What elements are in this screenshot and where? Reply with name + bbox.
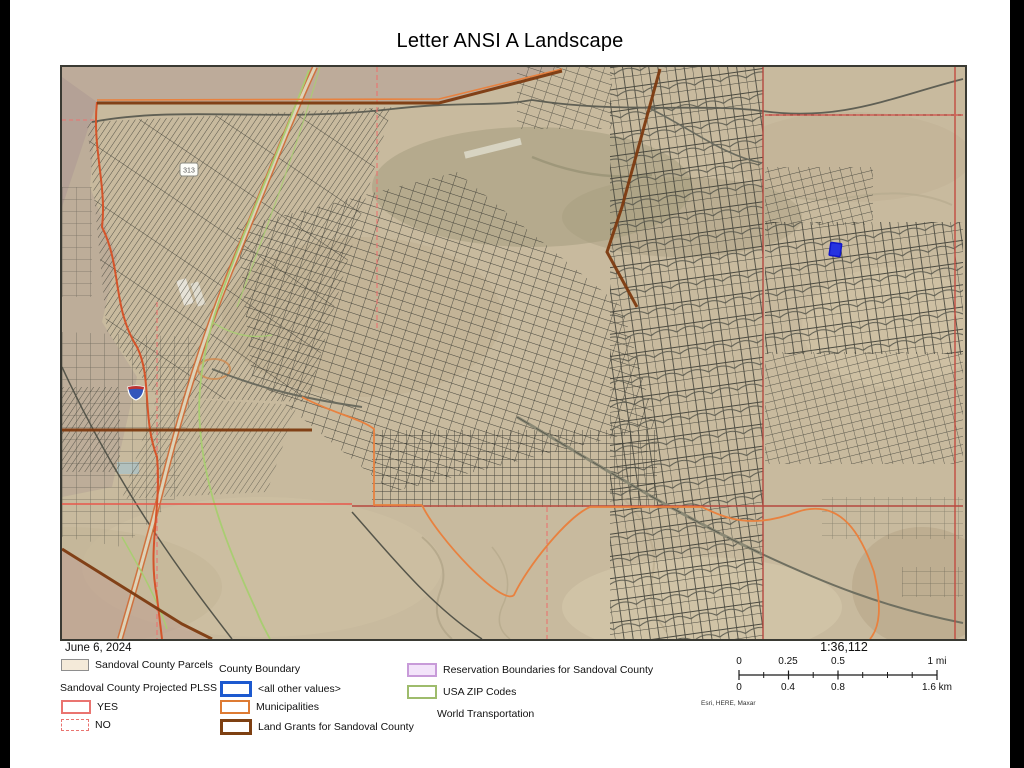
print-layout-page: Letter ANSI A Landscape	[10, 0, 1010, 768]
route-shield-313: 313	[180, 163, 198, 176]
scale-tick-label: 0	[736, 656, 742, 667]
page-title: Letter ANSI A Landscape	[10, 30, 1010, 53]
legend-label: YES	[97, 701, 118, 713]
legend-label: Sandoval County Parcels	[95, 659, 213, 671]
legend-label: NO	[95, 719, 111, 731]
plss-yes-swatch	[61, 700, 91, 714]
map-date: June 6, 2024	[65, 642, 132, 654]
scalebar	[738, 669, 940, 681]
scalebar-miles-labels: 0 0.25 0.5 1 mi	[739, 656, 937, 668]
scale-tick-label: 0.5	[831, 656, 845, 667]
legend-label: <all other values>	[258, 683, 341, 695]
legend-label: Land Grants for Sandoval County	[258, 721, 414, 733]
land-grants-swatch	[220, 719, 252, 735]
plss-no-swatch	[61, 719, 89, 731]
legend-label: Reservation Boundaries for Sandoval Coun…	[443, 664, 653, 676]
parcels-swatch	[61, 659, 89, 671]
legend-item-usa-zip-codes: USA ZIP Codes	[407, 685, 516, 699]
zip-codes-swatch	[407, 685, 437, 699]
legend-label: USA ZIP Codes	[443, 686, 516, 698]
legend-heading-world-transportation: World Transportation	[437, 708, 534, 720]
map-frame: 313	[60, 65, 967, 641]
scale-tick-label: 0.4	[781, 682, 795, 693]
legend-heading-plss: Sandoval County Projected PLSS	[60, 682, 217, 694]
scale-tick-label: 1 mi	[928, 656, 947, 667]
municipalities-swatch	[220, 700, 250, 714]
basemap-attribution: Esri, HERE, Maxar	[701, 700, 756, 707]
county-boundary-swatch	[220, 681, 252, 697]
map-canvas[interactable]: 313	[62, 67, 965, 639]
legend-item-reservation-boundaries: Reservation Boundaries for Sandoval Coun…	[407, 663, 653, 677]
legend-item-plss-no: NO	[61, 719, 111, 731]
legend-item-plss-yes: YES	[61, 700, 118, 714]
reservation-swatch	[407, 663, 437, 677]
legend-item-land-grants: Land Grants for Sandoval County	[220, 719, 414, 735]
scale-tick-label: 0.25	[778, 656, 797, 667]
scalebar-km-labels: 0 0.4 0.8 1.6 km	[739, 682, 937, 694]
scale-tick-label: 0	[736, 682, 742, 693]
legend-item-municipalities: Municipalities	[220, 700, 319, 714]
scale-tick-label: 0.8	[831, 682, 845, 693]
scale-ratio-text: 1:36,112	[739, 640, 949, 654]
scale-tick-label: 1.6 km	[922, 682, 952, 693]
legend-item-all-other-values: <all other values>	[220, 681, 341, 697]
legend-label: Municipalities	[256, 701, 319, 713]
legend-heading-county-boundary: County Boundary	[219, 663, 300, 675]
legend-item-sandoval-county-parcels: Sandoval County Parcels	[61, 659, 213, 671]
selected-parcel-highlight[interactable]	[829, 242, 842, 256]
route-shield-label: 313	[183, 168, 195, 175]
